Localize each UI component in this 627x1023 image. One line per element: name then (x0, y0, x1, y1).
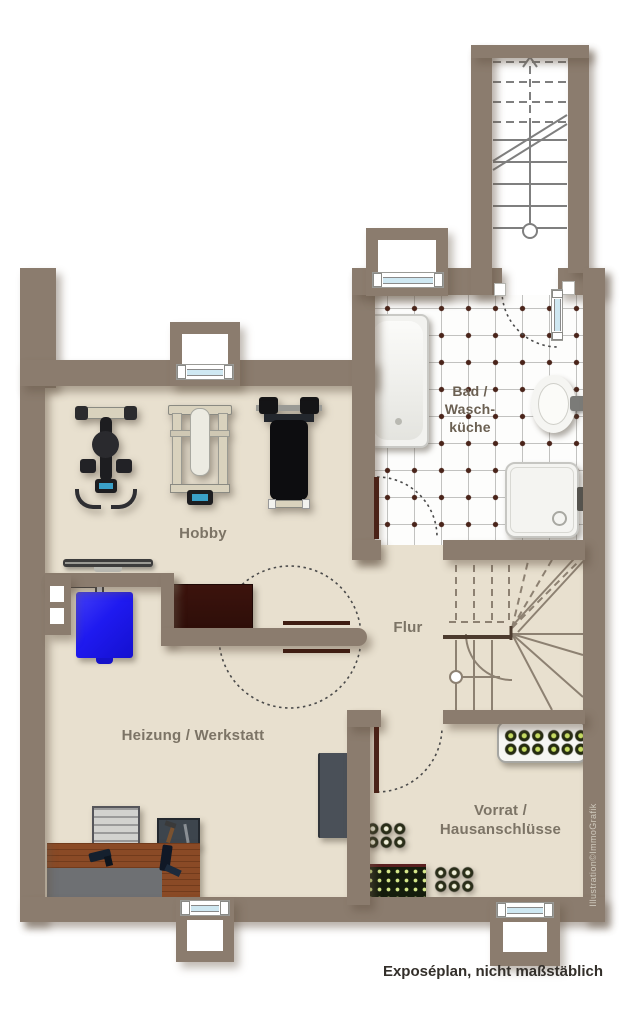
window-cap (181, 901, 190, 915)
multi-gym (168, 400, 232, 506)
workbench-gray-top (47, 868, 162, 900)
window-cap (434, 273, 443, 287)
shower-drain (552, 511, 567, 526)
window-bottom-left (180, 900, 230, 916)
window-cap (544, 903, 553, 917)
shelf-unit (92, 806, 140, 845)
table (173, 584, 253, 629)
room-label-vorrat: Vorrat / Hausanschlüsse (428, 801, 573, 839)
utility-cabinet (318, 753, 350, 838)
stairs-lower (443, 548, 588, 710)
double-door-leaf (283, 649, 350, 653)
weight-bench (256, 396, 322, 514)
watermark: Illustration©ImmoGrafik (588, 790, 600, 920)
workbench (47, 843, 200, 900)
bottle-group (547, 729, 588, 756)
door-cap (552, 290, 563, 298)
door-jamb (562, 281, 575, 295)
wall-tower-right (568, 45, 589, 273)
floor-plan-page: Hobby Flur Bad / Wasch- küche Heizung / … (0, 0, 627, 1023)
door-arc-vorrat (377, 727, 442, 792)
window-glass (507, 907, 543, 914)
oil-tank (76, 592, 133, 658)
bottle-group (366, 822, 407, 849)
window-cap (220, 901, 229, 915)
window-bottom-right (496, 902, 554, 918)
wall-tower-top (471, 45, 589, 58)
light-well-inner (503, 922, 547, 952)
chimney-flue (50, 608, 64, 624)
chimney (45, 575, 71, 635)
wall-left (20, 385, 45, 922)
window-cap (497, 903, 506, 917)
room-label-hobby: Hobby (153, 525, 253, 542)
wall-hobby-south-b (161, 628, 367, 646)
door-jamb (494, 283, 506, 296)
door-cap (552, 332, 563, 340)
window-cap (177, 365, 186, 379)
door-glass (554, 299, 561, 331)
window-glass (191, 905, 219, 912)
radiator (63, 559, 153, 567)
door-arc-bathroom-bottom (377, 477, 437, 537)
wall-stair-vorrat (443, 710, 585, 724)
plan-caption: Exposéplan, nicht maßstäblich (330, 963, 603, 980)
room-label-vorrat-line1: Vorrat / (428, 801, 573, 820)
wall-vorrat-west (347, 710, 370, 905)
door-arc-bathroom-top (502, 291, 558, 347)
wall-bath-left (352, 268, 375, 560)
room-label-heizung: Heizung / Werkstatt (108, 727, 278, 744)
light-well-inner (187, 920, 223, 951)
stairs-upper (493, 57, 567, 238)
wall-vorrat-jog (347, 710, 381, 727)
window-glass (187, 369, 223, 376)
light-well-inner (182, 334, 228, 364)
sink-basin (538, 383, 569, 425)
shower-tray (505, 462, 579, 538)
room-label-bad-line1: Bad / (425, 382, 515, 400)
window-glass (383, 277, 433, 284)
room-label-vorrat-line2: Hausanschlüsse (428, 820, 573, 839)
window-hobby-top (176, 364, 234, 380)
door-leaf-bathroom-bottom (374, 477, 379, 539)
bottle-group (434, 866, 475, 893)
chimney-flue (50, 586, 64, 602)
window-cap (224, 365, 233, 379)
tool-icon (183, 824, 189, 843)
room-label-bad-line2: Wasch- (425, 400, 515, 418)
door-leaf-vorrat (374, 727, 379, 793)
window-cap (373, 273, 382, 287)
wall-bath-bottom-right (443, 540, 585, 560)
bathtub (367, 314, 429, 448)
bottle-tray (497, 721, 587, 763)
wall-tower-left (471, 45, 492, 295)
double-door-leaf (283, 621, 350, 625)
room-label-bad-line3: küche (425, 418, 515, 436)
room-label-bad: Bad / Wasch- küche (425, 382, 515, 436)
exercise-bike (75, 403, 137, 511)
wall-bath-bottom-left (352, 540, 381, 560)
bathtub-drain (395, 418, 402, 425)
room-label-flur: Flur (378, 619, 438, 636)
door-leaf-bathroom-top (551, 289, 563, 341)
bottle-group (504, 729, 545, 756)
window-bath-top (372, 272, 444, 288)
